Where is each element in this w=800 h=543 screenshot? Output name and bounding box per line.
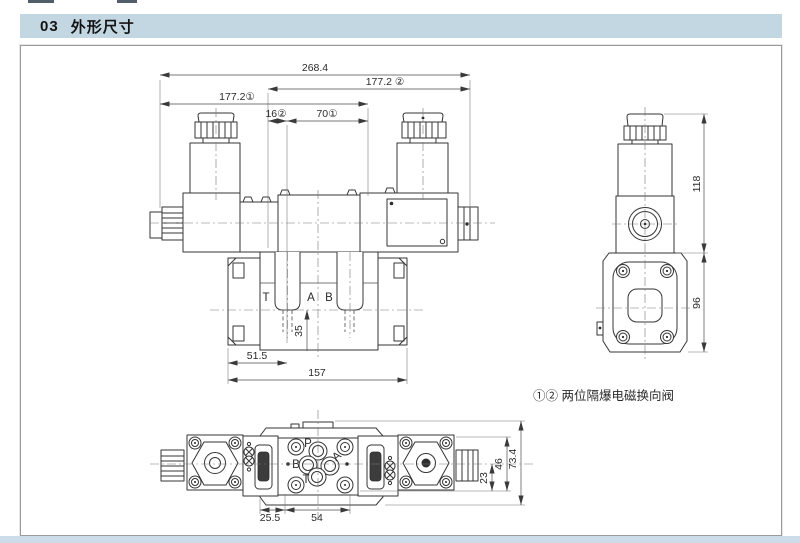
dim-solenoid1-width: 177.2① bbox=[219, 91, 255, 103]
top-port-label-b: B bbox=[292, 459, 300, 471]
top-right-override bbox=[456, 450, 478, 481]
dim-left-port: 51.5 bbox=[247, 350, 268, 362]
dim-upper-height: 118 bbox=[691, 175, 703, 192]
scan-artifact-left bbox=[28, 0, 54, 3]
dim-port-dist: 35 bbox=[293, 325, 305, 337]
dim-offset1: 70① bbox=[316, 108, 338, 120]
dim-inner-width: 46 bbox=[493, 458, 505, 470]
scan-artifact-right bbox=[117, 0, 137, 3]
right-solenoid bbox=[397, 113, 448, 193]
front-view: T A B 268.4 177.2 ② 177.2① 16② 70① 35 51… bbox=[150, 62, 495, 384]
dim-lower-height: 96 bbox=[691, 297, 703, 309]
dim-solenoid2-width: 177.2 ② bbox=[366, 76, 405, 88]
dimension-drawing: T A B 268.4 177.2 ② 177.2① 16② 70① 35 51… bbox=[20, 45, 780, 534]
dim-port-span: 54 bbox=[311, 512, 323, 524]
dim-to-center: 23 bbox=[478, 472, 490, 484]
nameplate bbox=[387, 199, 447, 246]
caption-note: ①② 两位隔爆电磁换向阀 bbox=[533, 388, 674, 403]
port-label-t: T bbox=[262, 292, 269, 304]
dim-overall-width-top: 73.4 bbox=[507, 449, 519, 470]
top-port-label-t: T bbox=[302, 474, 309, 486]
top-port-label-p: P bbox=[304, 438, 312, 450]
section-header: 03 外形尺寸 bbox=[20, 14, 782, 38]
port-label-b: B bbox=[325, 292, 333, 304]
subplate: T A B bbox=[228, 252, 407, 350]
side-view: 118 96 bbox=[596, 107, 708, 362]
footer-strip bbox=[0, 536, 800, 543]
dim-base-length: 157 bbox=[308, 367, 326, 379]
port-label-a: A bbox=[307, 292, 315, 304]
dim-overall-width: 268.4 bbox=[302, 62, 328, 74]
top-view: P B A T 25.5 54 23 46 73.4 bbox=[150, 410, 533, 524]
right-manual-override bbox=[458, 207, 478, 240]
dim-left-offset: 25.5 bbox=[260, 512, 281, 524]
section-title: 外形尺寸 bbox=[71, 16, 135, 37]
top-port-plate: P B A T bbox=[244, 438, 395, 495]
left-solenoid bbox=[190, 113, 240, 193]
section-number: 03 bbox=[40, 18, 59, 35]
top-left-flange bbox=[187, 435, 243, 490]
side-valve-body bbox=[597, 253, 687, 352]
top-left-override bbox=[161, 450, 184, 481]
dim-offset2: 16② bbox=[265, 108, 287, 120]
top-right-flange bbox=[398, 435, 454, 490]
left-manual-override bbox=[150, 207, 183, 240]
